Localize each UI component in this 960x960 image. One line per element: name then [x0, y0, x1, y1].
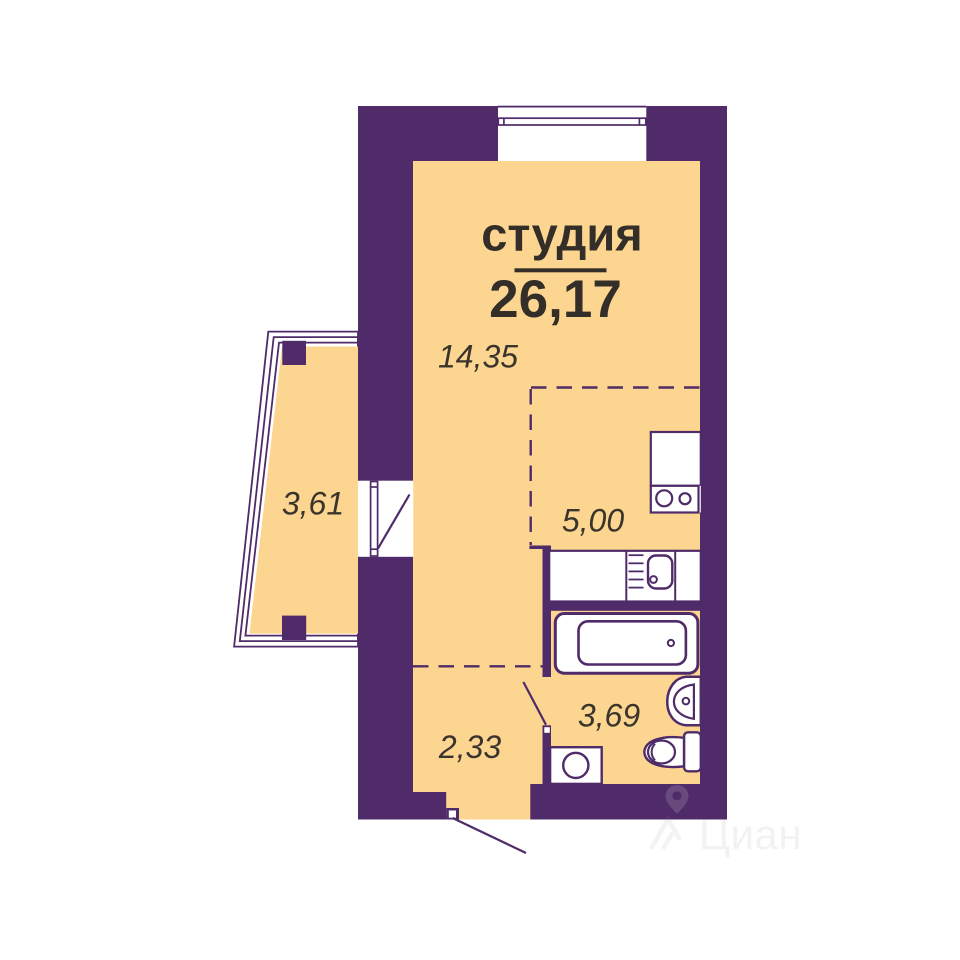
svg-text:3,69: 3,69: [578, 698, 640, 734]
svg-text:3,61: 3,61: [282, 486, 344, 522]
svg-text:2,33: 2,33: [438, 729, 501, 765]
svg-text:5,00: 5,00: [562, 503, 624, 539]
svg-text:14,35: 14,35: [438, 339, 518, 375]
svg-text:26,17: 26,17: [489, 270, 622, 329]
svg-text:студия: студия: [481, 208, 642, 261]
svg-text:Циан: Циан: [699, 811, 802, 858]
